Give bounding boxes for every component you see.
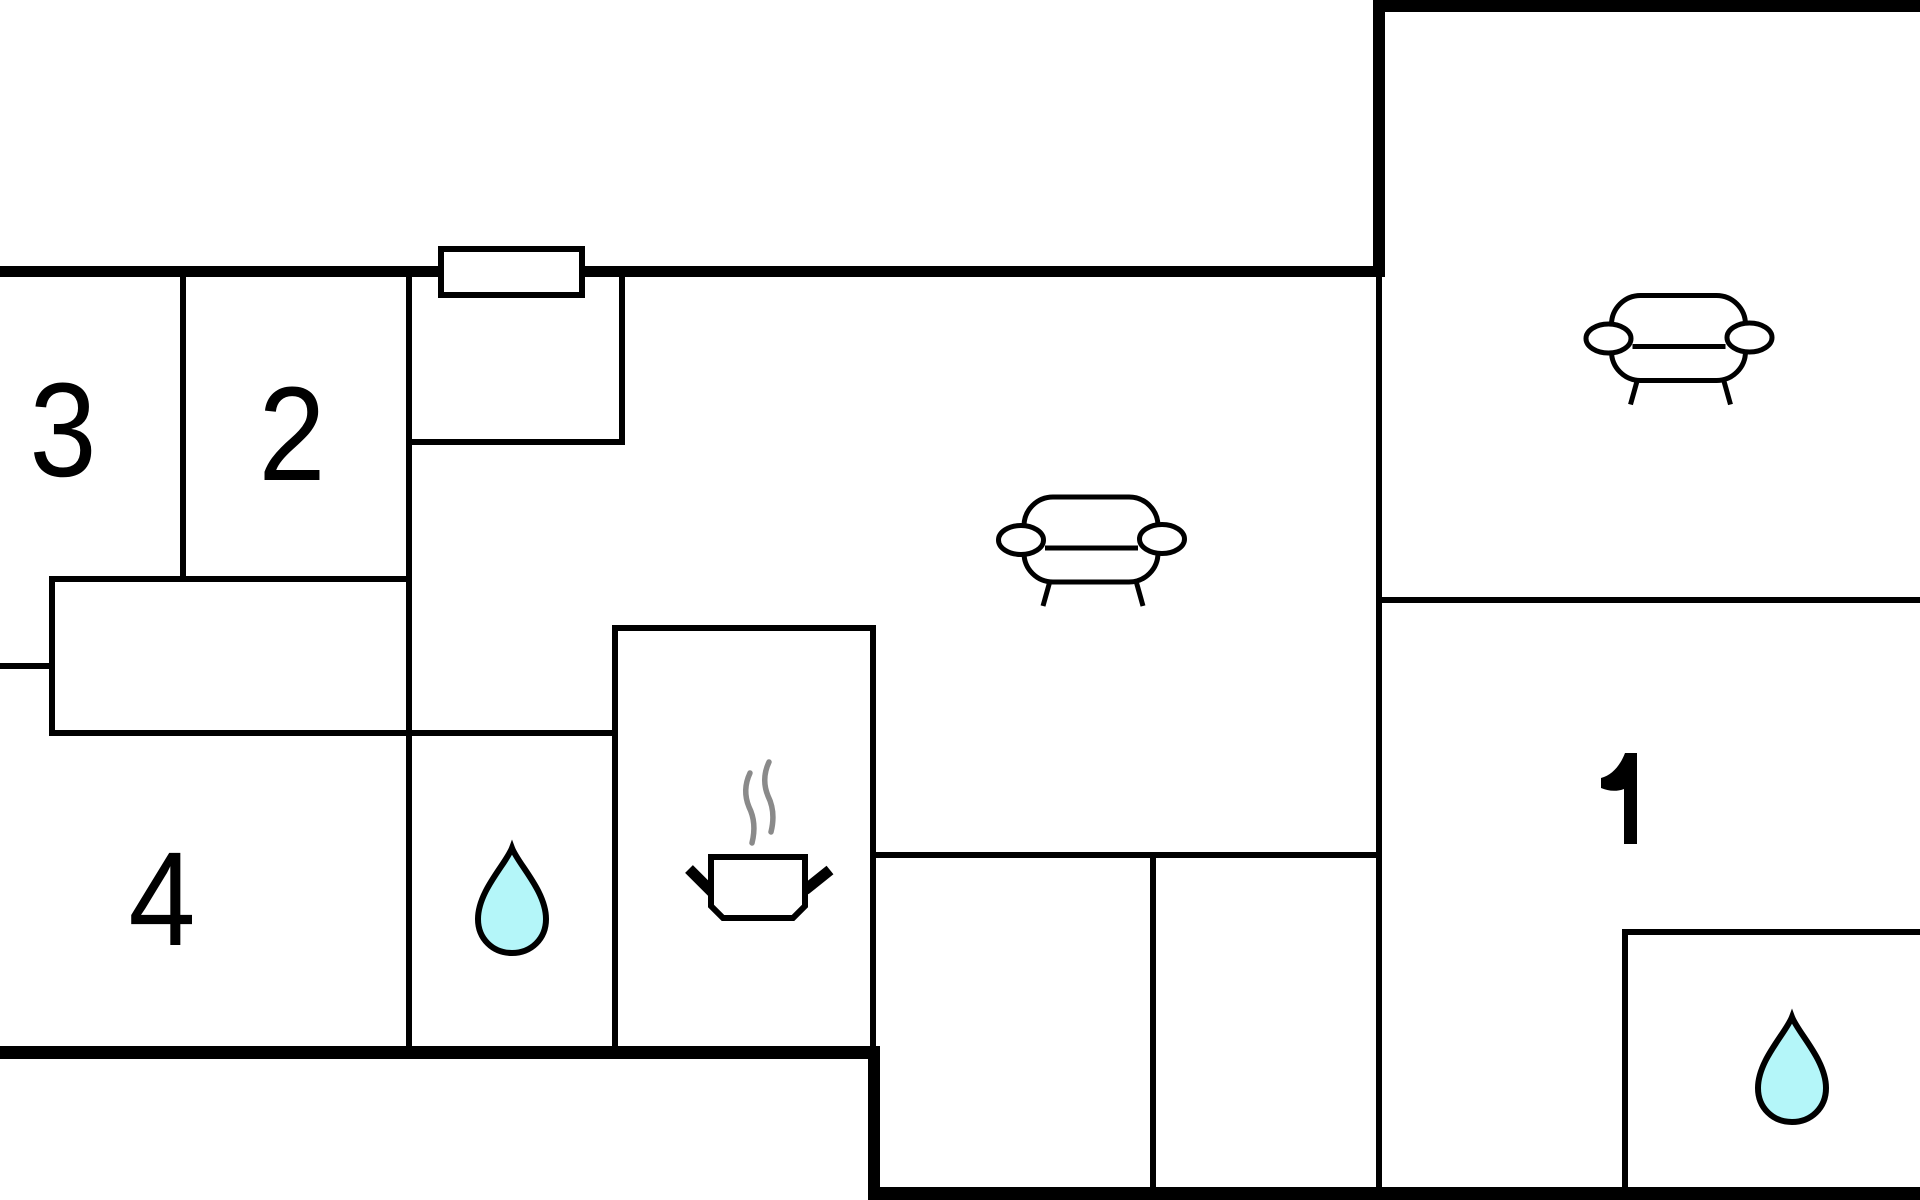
svg-text:3: 3 (29, 356, 96, 505)
svg-text:2: 2 (258, 360, 325, 509)
svg-text:4: 4 (128, 825, 195, 974)
